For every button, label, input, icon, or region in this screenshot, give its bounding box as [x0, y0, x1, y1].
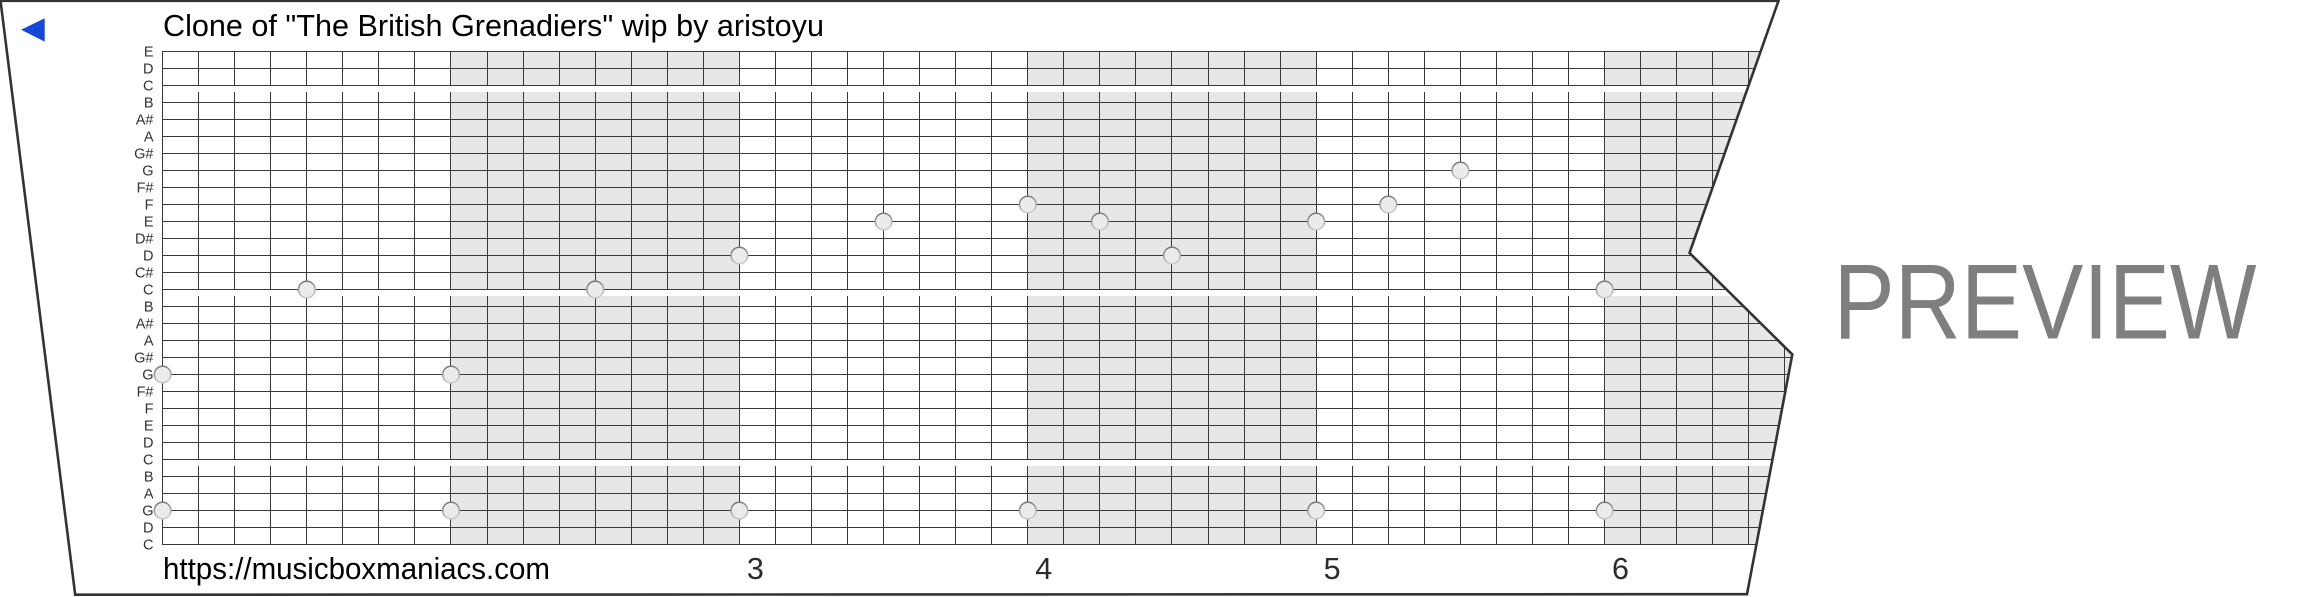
svg-text:C: C — [143, 453, 153, 469]
svg-text:https://musicboxmaniacs.com: https://musicboxmaniacs.com — [163, 552, 550, 586]
svg-text:G#: G# — [134, 147, 153, 163]
svg-text:C#: C# — [135, 266, 154, 282]
svg-text:PREVIEW: PREVIEW — [1834, 242, 2257, 362]
svg-text:C: C — [143, 79, 153, 95]
svg-text:3: 3 — [747, 552, 764, 586]
svg-text:A#: A# — [136, 113, 154, 129]
svg-text:G#: G# — [134, 351, 153, 367]
svg-text:5: 5 — [1324, 552, 1341, 586]
svg-text:G: G — [142, 368, 153, 384]
svg-text:A: A — [144, 487, 154, 503]
svg-text:B: B — [144, 300, 154, 316]
svg-text:D: D — [143, 249, 153, 265]
svg-text:6: 6 — [1612, 552, 1629, 586]
svg-text:4: 4 — [1035, 552, 1052, 586]
svg-text:G: G — [142, 504, 153, 520]
svg-text:G: G — [142, 164, 153, 180]
svg-text:F: F — [145, 198, 154, 214]
svg-text:Clone of "The British Grenadie: Clone of "The British Grenadiers" wip by… — [163, 8, 824, 43]
svg-text:C: C — [143, 283, 153, 299]
svg-text:E: E — [144, 215, 154, 231]
svg-text:E: E — [144, 419, 154, 435]
svg-text:F#: F# — [137, 181, 154, 197]
svg-text:F: F — [145, 402, 154, 418]
svg-text:B: B — [144, 96, 154, 112]
svg-text:E: E — [144, 45, 154, 61]
svg-text:D: D — [143, 521, 153, 537]
svg-text:D: D — [143, 436, 153, 452]
svg-text:A: A — [144, 334, 154, 350]
svg-text:F#: F# — [137, 385, 154, 401]
svg-text:D#: D# — [135, 232, 154, 248]
svg-text:C: C — [143, 538, 153, 554]
svg-text:A#: A# — [136, 317, 154, 333]
svg-text:B: B — [144, 470, 154, 486]
svg-text:D: D — [143, 62, 153, 78]
svg-text:A: A — [144, 130, 154, 146]
